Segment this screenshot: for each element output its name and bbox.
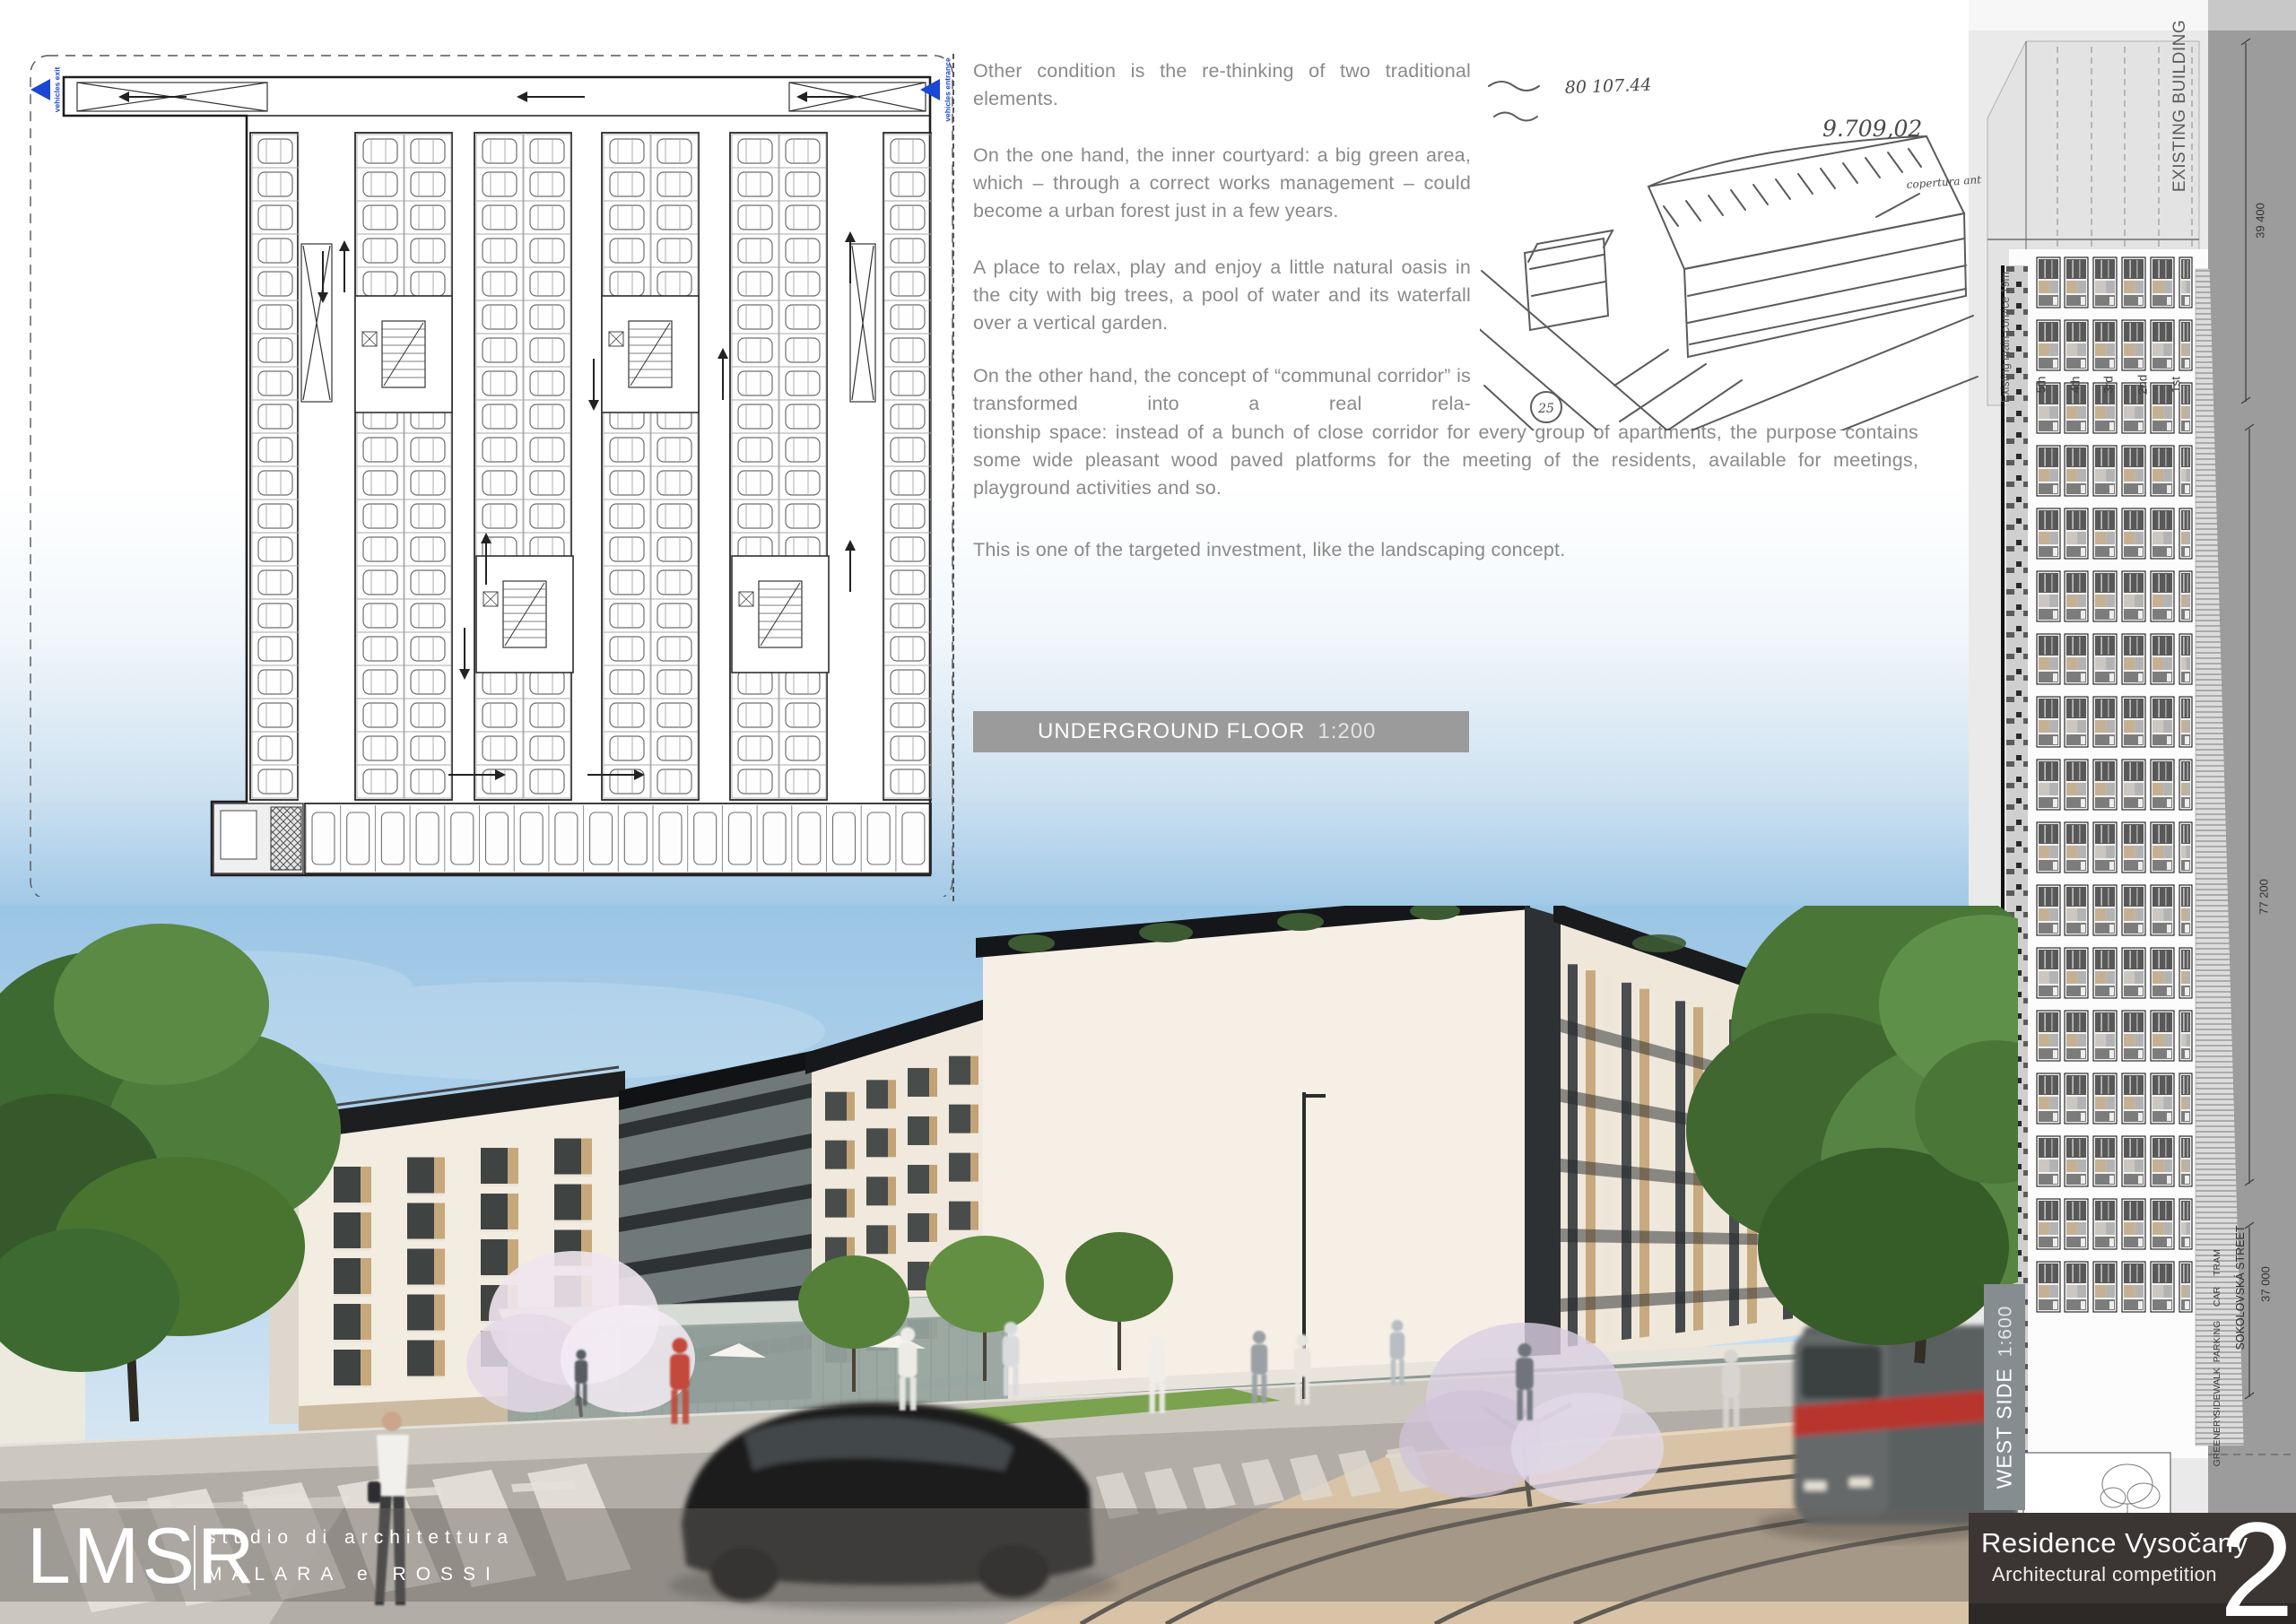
floor-label-5th: 5th — [2035, 377, 2048, 394]
street-name-label: SOKOLOVSKÁ STREET — [2234, 1226, 2247, 1350]
vehicles-exit-label: vehicles exit — [54, 67, 62, 113]
dim-77200: 77 200 — [2257, 879, 2271, 915]
vehicles-exit-icon — [30, 79, 50, 100]
floor-label-3rd: 3rd — [2102, 376, 2116, 394]
floor-label-4th: 4th — [2069, 377, 2083, 394]
underground-floor-scale: 1:200 — [1318, 719, 1376, 743]
logo-band — [0, 1508, 1969, 1602]
existing-building-label: EXISTING BUILDING — [2170, 20, 2190, 192]
paragraph-4a: On the other hand, the concept of “commu… — [973, 362, 1471, 418]
paragraph-5: This is one of the targeted investment, … — [973, 536, 1918, 564]
concept-hand-sketch: 80 107.44 9.709,02 copertura antica 25 — [1480, 36, 1982, 430]
paragraph-2: On the one hand, the inner courtyard: a … — [973, 142, 1471, 225]
sketch-annotation-top: 80 107.44 — [1564, 75, 1651, 98]
sketch-annotation-circled: 25 — [1537, 402, 1554, 416]
logo-studio-line: studio di architettura — [206, 1527, 514, 1549]
paragraph-3: A place to relax, play and enjoy a littl… — [973, 254, 1471, 337]
dim-39400: 39 400 — [2254, 203, 2267, 239]
floor-label-1st: 1st — [2170, 377, 2183, 393]
street-label-tram: TRAM — [2212, 1249, 2222, 1276]
logo-names-line: MALARA e ROSSI — [206, 1564, 500, 1585]
cornice-label: Existing main cornice 19m — [1999, 272, 2012, 403]
project-title: Residence Vysočany — [1981, 1527, 2248, 1559]
vehicles-entrance-label: vehicles entrance — [944, 57, 952, 121]
west-side-scale: 1:600 — [1996, 1306, 2016, 1358]
paragraph-4b: tionship space: instead of a bunch of cl… — [973, 419, 1918, 502]
dashed-separator — [952, 54, 954, 901]
project-subtitle: Architectural competition — [1992, 1563, 2217, 1586]
street-label-sidewalk: SIDEWALK — [2212, 1368, 2222, 1416]
west-side-bar: WEST SIDE1:600 — [1984, 1284, 2025, 1510]
street-label-car: CAR — [2212, 1287, 2222, 1307]
sketch-annotation-side: copertura antica — [1906, 172, 1982, 191]
competition-board: vehicles exit vehicles entrance Other co… — [0, 0, 2296, 1624]
sketch-annotation-number: 9.709,02 — [1822, 116, 1922, 142]
logo-divider — [194, 1525, 196, 1590]
street-label-greenery: GREENERY — [2212, 1414, 2222, 1467]
underground-floor-bar: UNDERGROUND FLOOR1:200 — [973, 711, 1469, 752]
underground-floor-plan — [18, 45, 969, 897]
floor-label-2nd: 2nd — [2136, 375, 2150, 395]
elevation-facade-modules — [2037, 257, 2192, 1312]
paragraph-1: Other condition is the re-thinking of tw… — [973, 57, 1471, 113]
west-side-label: WEST SIDE — [1993, 1368, 2016, 1489]
underground-floor-label: UNDERGROUND FLOOR — [1038, 719, 1305, 743]
dim-37000: 37 000 — [2259, 1266, 2273, 1302]
board-number: 2 — [2220, 1502, 2294, 1624]
street-label-parking: PARKING — [2212, 1321, 2222, 1362]
title-panel: Residence Vysočany Architectural competi… — [1969, 1513, 2296, 1624]
